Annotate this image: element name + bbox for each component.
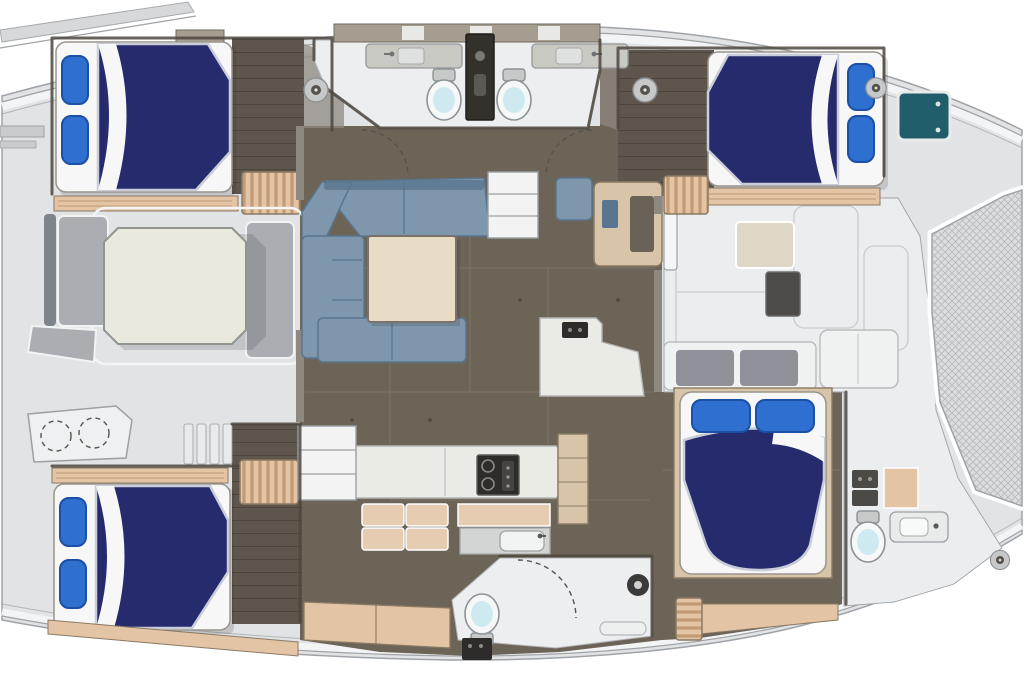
cockpit-bench-left bbox=[58, 216, 108, 326]
helm-console bbox=[28, 406, 132, 462]
companionway-steps bbox=[676, 598, 702, 640]
berth-pillow bbox=[60, 560, 86, 608]
stern-step-rail bbox=[0, 126, 44, 137]
sink-counter-port bbox=[366, 44, 462, 68]
companionway-landing bbox=[704, 188, 880, 205]
boom-overhang bbox=[0, 2, 194, 42]
galley-counter bbox=[348, 446, 558, 498]
galley-lower-cabinet bbox=[458, 504, 550, 526]
companionway-steps bbox=[664, 176, 708, 214]
floor-plan-stage: Catamaran yacht interior floor plan, top… bbox=[0, 0, 1024, 680]
deck-cleat bbox=[304, 78, 328, 102]
berth-pillow bbox=[62, 116, 88, 164]
sink-counter-starboard bbox=[532, 44, 628, 68]
deck-hatch bbox=[898, 92, 950, 140]
shower-head bbox=[627, 574, 649, 596]
berth-pillow bbox=[60, 498, 86, 546]
cooktop bbox=[477, 455, 519, 495]
berth-pillow bbox=[756, 400, 814, 432]
berth-pillow bbox=[62, 56, 88, 104]
ensuite-sink bbox=[890, 512, 948, 542]
deck-cleat bbox=[633, 78, 657, 102]
lounge-seat-box bbox=[736, 222, 794, 268]
galley-tall-cabinet bbox=[558, 434, 588, 524]
shower-column bbox=[466, 34, 494, 120]
salon-table bbox=[368, 236, 456, 322]
lounge-door-leaf bbox=[664, 212, 677, 270]
salon-shelf-unit bbox=[488, 172, 538, 238]
galley-sink bbox=[460, 528, 550, 554]
deck-cleat bbox=[866, 78, 886, 98]
companionway-landing bbox=[52, 468, 228, 483]
companionway-steps bbox=[240, 460, 298, 504]
nav-seat bbox=[556, 178, 592, 220]
lounge-table-box bbox=[766, 272, 800, 316]
cockpit-table bbox=[104, 228, 246, 344]
shower-bench bbox=[600, 622, 646, 635]
berth-pillow bbox=[692, 400, 750, 432]
deck-cleat bbox=[990, 550, 1009, 569]
floor-plan-svg: Catamaran yacht interior floor plan, top… bbox=[0, 0, 1024, 680]
cockpit-post bbox=[44, 214, 56, 326]
plumbing-box bbox=[462, 638, 492, 660]
side-bench bbox=[304, 602, 450, 648]
ensuite-cabinet bbox=[884, 468, 918, 508]
berth-pillow bbox=[848, 116, 874, 162]
cabin-shelf-unit bbox=[298, 426, 356, 500]
aft-cockpit bbox=[28, 208, 304, 364]
